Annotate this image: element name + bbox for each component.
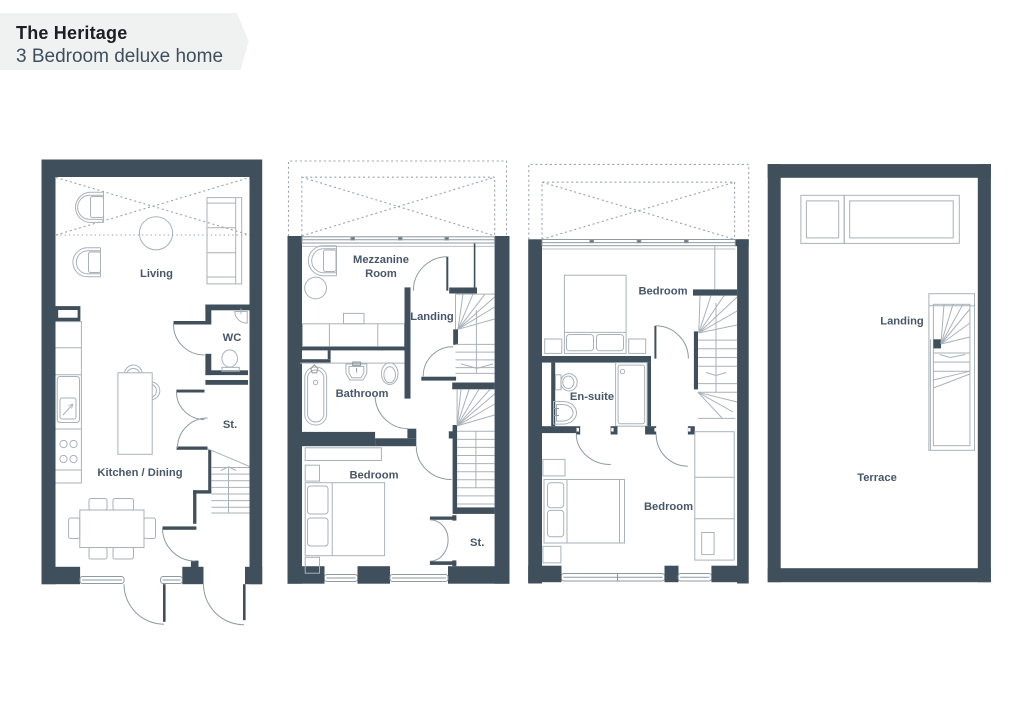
svg-text:Bedroom: Bedroom: [638, 286, 687, 298]
svg-text:Living: Living: [140, 268, 173, 280]
svg-text:Bathroom: Bathroom: [336, 388, 389, 400]
svg-text:Room: Room: [365, 268, 397, 280]
svg-text:Landing: Landing: [410, 311, 454, 323]
svg-text:The Heritage: The Heritage: [16, 23, 127, 43]
svg-text:En-suite: En-suite: [570, 391, 614, 403]
svg-text:WC: WC: [223, 332, 242, 344]
svg-text:Kitchen / Dining: Kitchen / Dining: [97, 467, 182, 479]
svg-text:3 Bedroom deluxe home: 3 Bedroom deluxe home: [16, 46, 223, 67]
svg-text:Bedroom: Bedroom: [644, 501, 693, 513]
svg-text:Landing: Landing: [880, 316, 924, 328]
svg-text:St.: St.: [223, 419, 237, 431]
svg-text:Terrace: Terrace: [857, 472, 897, 484]
svg-text:Bedroom: Bedroom: [349, 470, 398, 482]
svg-text:St.: St.: [470, 537, 484, 549]
svg-text:Mezzanine: Mezzanine: [353, 254, 409, 266]
